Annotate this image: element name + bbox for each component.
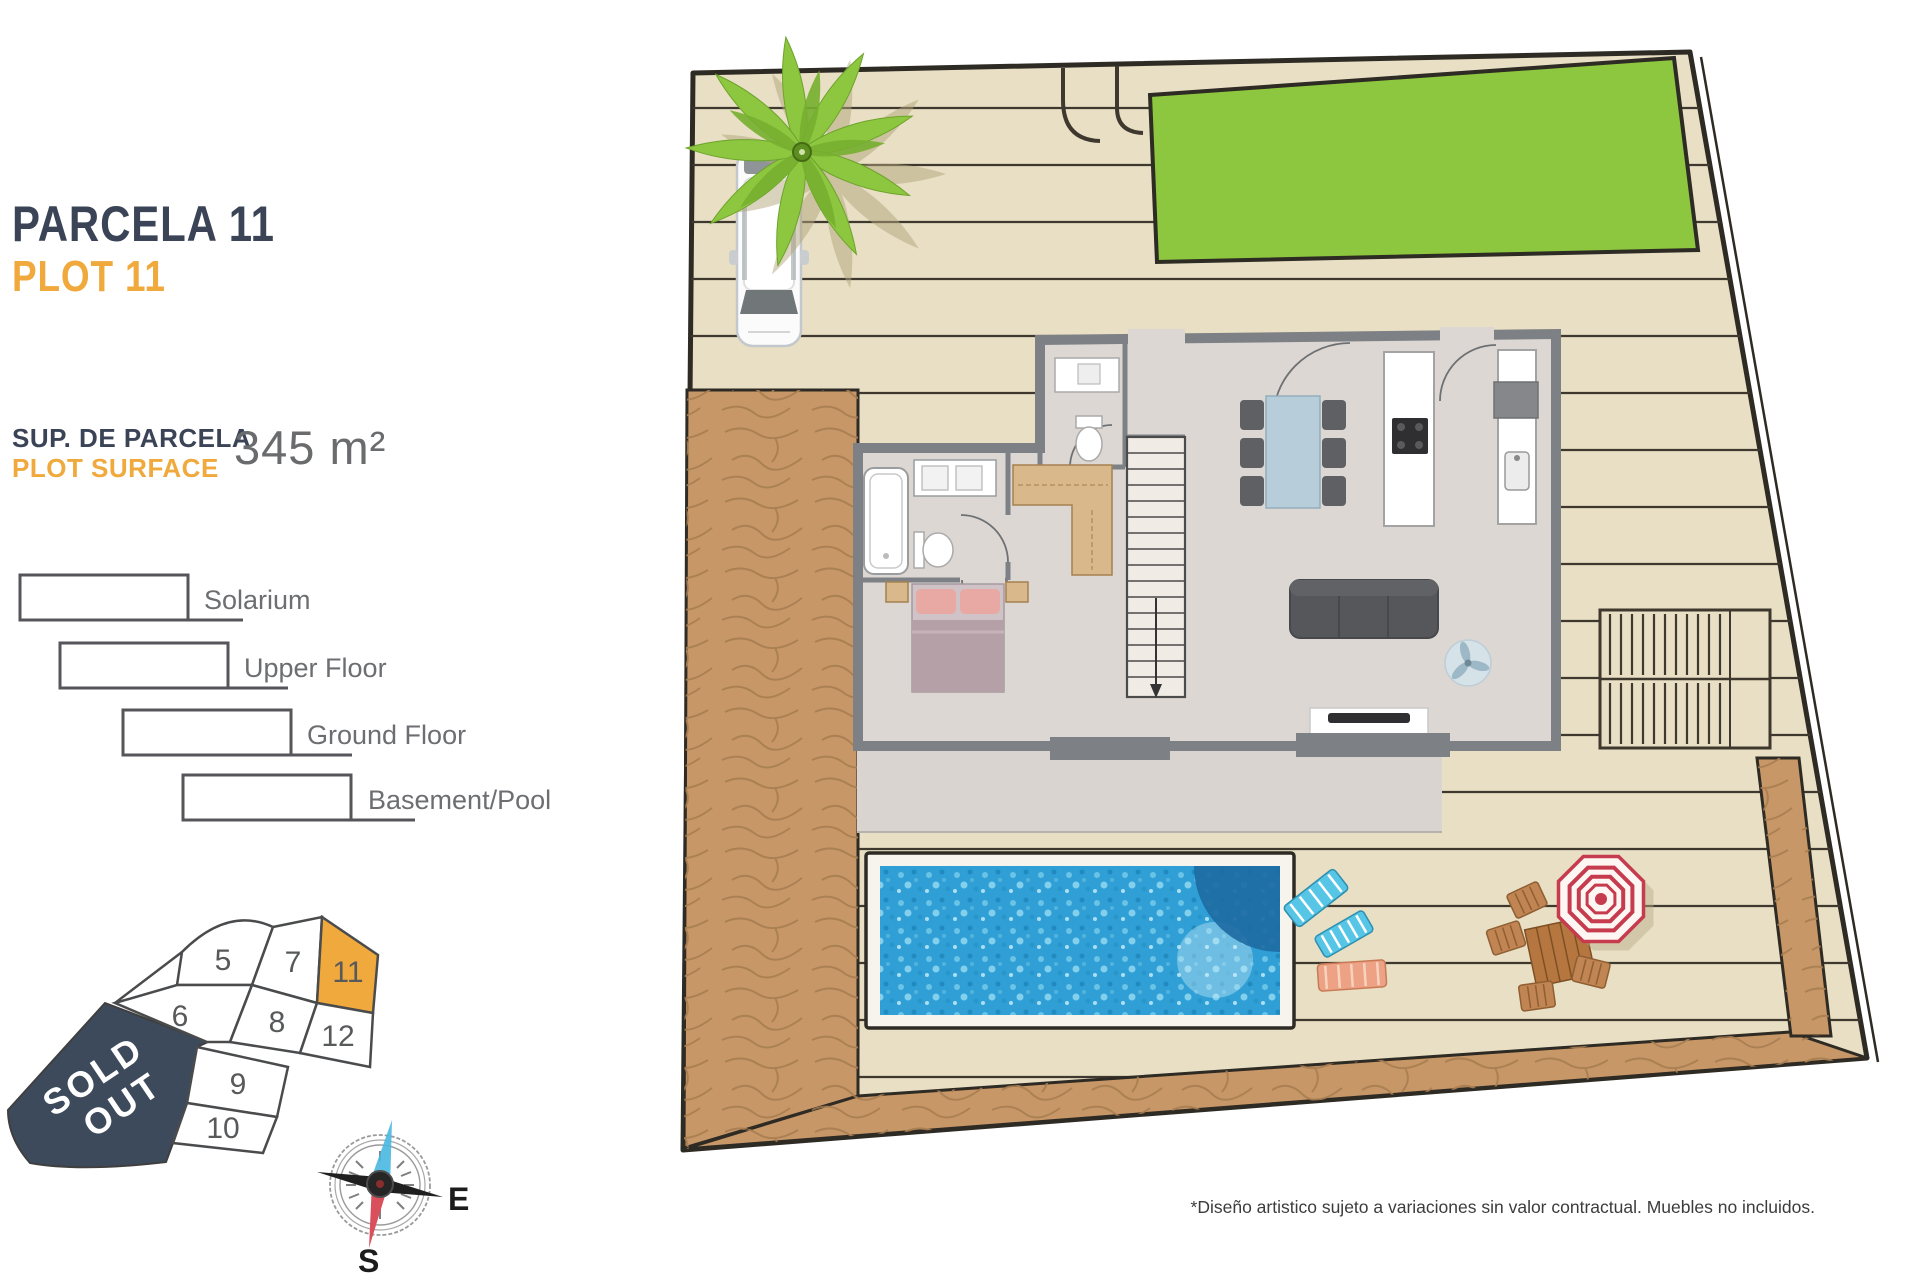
site-plan [0, 0, 1920, 1280]
exterior-stairs [1600, 610, 1770, 748]
nightstand [1006, 582, 1028, 602]
disclaimer-text: *Diseño artistico sujeto a variaciones s… [900, 1197, 1815, 1218]
grass-lawn [1150, 58, 1698, 262]
fridge [1494, 382, 1538, 418]
dining-chair [1322, 438, 1346, 468]
cooktop [1392, 418, 1428, 454]
pillow [960, 589, 1000, 614]
sliding-window [1050, 737, 1170, 760]
pool [866, 853, 1294, 1028]
sliding-window [1296, 733, 1450, 757]
ceiling-fan-icon [1445, 640, 1491, 686]
dining-chair [1240, 400, 1264, 430]
dining-area [1240, 396, 1346, 508]
wc-toilet [1076, 427, 1102, 461]
dining-chair [1322, 476, 1346, 506]
nightstand [886, 582, 908, 602]
kitchen-counter [1498, 350, 1536, 524]
bathroom-toilet [923, 533, 953, 567]
pillow [916, 589, 956, 614]
dining-table [1266, 396, 1320, 508]
dining-chair [1240, 438, 1264, 468]
interior-stairs [1127, 437, 1185, 698]
dining-chair [1322, 400, 1346, 430]
dining-chair [1240, 476, 1264, 506]
tv [1328, 713, 1410, 723]
